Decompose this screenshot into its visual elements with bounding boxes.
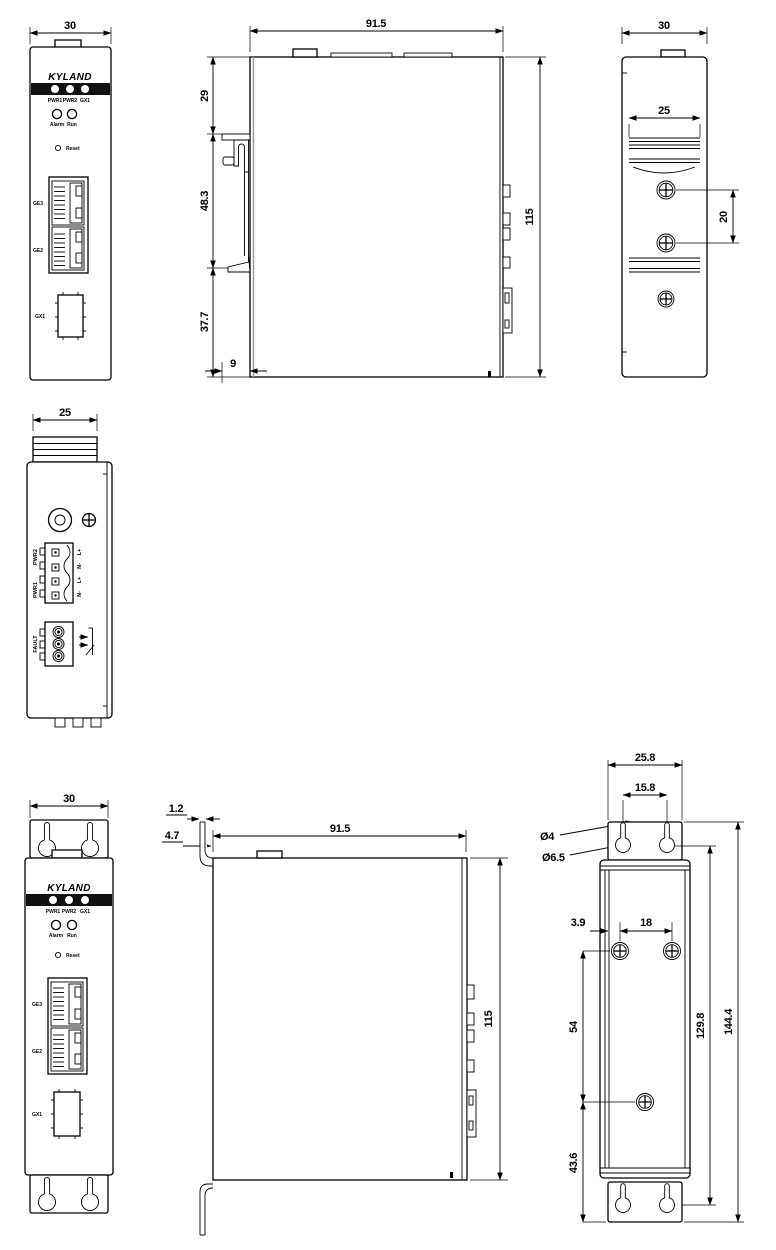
brand-logo: KYLAND	[48, 72, 91, 83]
ge3-label: GE3	[33, 201, 43, 207]
pin3-label: L+	[77, 577, 83, 584]
led-label-gx1: GX1	[80, 909, 90, 915]
view-front-wall: 30 KYLAND PWR1 PWR2 GX1 Alarm Run Reset	[25, 793, 113, 1213]
bottom-mounting-bracket	[608, 1182, 682, 1222]
bottom-pins	[55, 718, 101, 727]
fault-label: FAULT	[33, 635, 39, 653]
screw	[657, 234, 675, 252]
rj45-block	[49, 177, 88, 273]
led-gx1	[81, 896, 89, 904]
top-mounting-bracket	[608, 822, 682, 860]
dim-rear-din-width: 30	[658, 20, 670, 32]
led-gx1	[81, 85, 89, 93]
screw	[612, 943, 629, 960]
led-label-pwr1: PWR1	[46, 909, 61, 915]
brand-logo: KYLAND	[47, 883, 90, 894]
dim-slot-diameter: Ø4	[540, 831, 555, 843]
dim-wall-plate-offset: 4.7	[165, 830, 180, 842]
pwr2-label: PWR2	[33, 549, 39, 565]
dim-rear-wall-width: 25.8	[635, 752, 655, 764]
screw	[658, 291, 674, 307]
run-label: Run	[67, 933, 77, 939]
dim-hole-diameter: Ø6.5	[542, 852, 565, 864]
alarm-label: Alarm	[49, 933, 64, 939]
view-side-wall: 1.2 4.7 91.5	[162, 803, 508, 1235]
dim-bottom-view-width: 25	[59, 407, 71, 419]
dim-side-din-seg-top: 29	[199, 90, 211, 102]
view-rear-din: 30 25 2	[622, 20, 739, 377]
dim-side-din-width: 91.5	[366, 18, 386, 30]
pwr1-label: PWR1	[33, 582, 39, 598]
ge3-label: GE3	[32, 1002, 42, 1008]
led-pwr2	[66, 85, 74, 93]
screw	[664, 943, 681, 960]
relay-terminal-block	[40, 622, 73, 666]
power-terminal-block	[40, 543, 73, 603]
gx1-port-label: GX1	[32, 1112, 42, 1118]
led-label-gx1: GX1	[80, 98, 90, 104]
screw	[657, 181, 675, 199]
dim-rear-wall-screw-gap: 18	[640, 917, 652, 929]
dim-side-din-seg-bot: 37.7	[199, 312, 211, 332]
led-strip	[26, 894, 112, 906]
heatsink-ribs	[33, 437, 97, 462]
run-label: Run	[67, 122, 77, 128]
dim-rear-wall-hole-span: 129.8	[695, 1013, 707, 1039]
alarm-label: Alarm	[50, 122, 65, 128]
dim-rear-din-screw-gap: 20	[718, 211, 730, 223]
dim-wall-plate-thickness: 1.2	[169, 803, 184, 815]
led-strip	[31, 83, 110, 95]
reset-label: Reset	[66, 953, 80, 959]
led-label-pwr2: PWR2	[63, 98, 78, 104]
dim-side-wall-width: 91.5	[330, 823, 350, 835]
dim-side-wall-height: 115	[483, 1010, 495, 1027]
sfp-cage	[51, 1089, 83, 1139]
pin4-label: N-	[77, 591, 83, 597]
view-bottom-power: 25 PWR2	[27, 407, 112, 727]
bottom-mounting-bracket	[30, 1175, 108, 1213]
dim-side-din-height: 115	[524, 208, 536, 225]
led-label-pwr1: PWR1	[48, 98, 63, 104]
pin1-label: L+	[77, 549, 83, 556]
dim-rear-wall-edge: 3.9	[571, 917, 586, 929]
ground-screw	[83, 514, 96, 527]
view-rear-wall: 25.8 15.8 Ø4 Ø6.5 3.9 18	[540, 752, 744, 1222]
dimension-drawing: 30 KYLAND PWR1 PWR2 GX1 Alarm Run Reset	[0, 0, 776, 1250]
dim-rear-wall-slot-gap: 15.8	[635, 782, 655, 794]
rj45-block	[48, 978, 87, 1074]
dim-rear-wall-screw-span: 54	[568, 1020, 580, 1033]
led-pwr1	[49, 896, 57, 904]
view-side-din: 91.5 29 48.3 37.7 9	[199, 18, 546, 383]
dim-side-din-seg-mid: 48.3	[199, 191, 211, 211]
led-pwr2	[65, 896, 73, 904]
gx1-port-label: GX1	[35, 314, 45, 320]
dim-front-wall-width: 30	[63, 793, 75, 805]
dim-rear-wall-height: 144.4	[723, 1008, 735, 1035]
reset-label: Reset	[66, 146, 80, 152]
din-clip	[222, 134, 250, 272]
dim-rear-din-rail-width: 25	[658, 105, 670, 117]
sfp-cage	[55, 292, 86, 340]
ge2-label: GE2	[33, 248, 43, 254]
led-pwr1	[51, 85, 59, 93]
dim-side-din-foot: 9	[230, 358, 236, 370]
dim-rear-wall-bottom-span: 43.6	[568, 1153, 580, 1173]
screw	[637, 1094, 654, 1111]
dim-front-din-width: 30	[64, 20, 76, 32]
ge2-label: GE2	[32, 1049, 42, 1055]
led-label-pwr2: PWR2	[62, 909, 77, 915]
pin2-label: N-	[77, 563, 83, 569]
view-front-din: 30 KYLAND PWR1 PWR2 GX1 Alarm Run Reset	[30, 20, 111, 380]
wall-plate	[200, 822, 213, 1235]
